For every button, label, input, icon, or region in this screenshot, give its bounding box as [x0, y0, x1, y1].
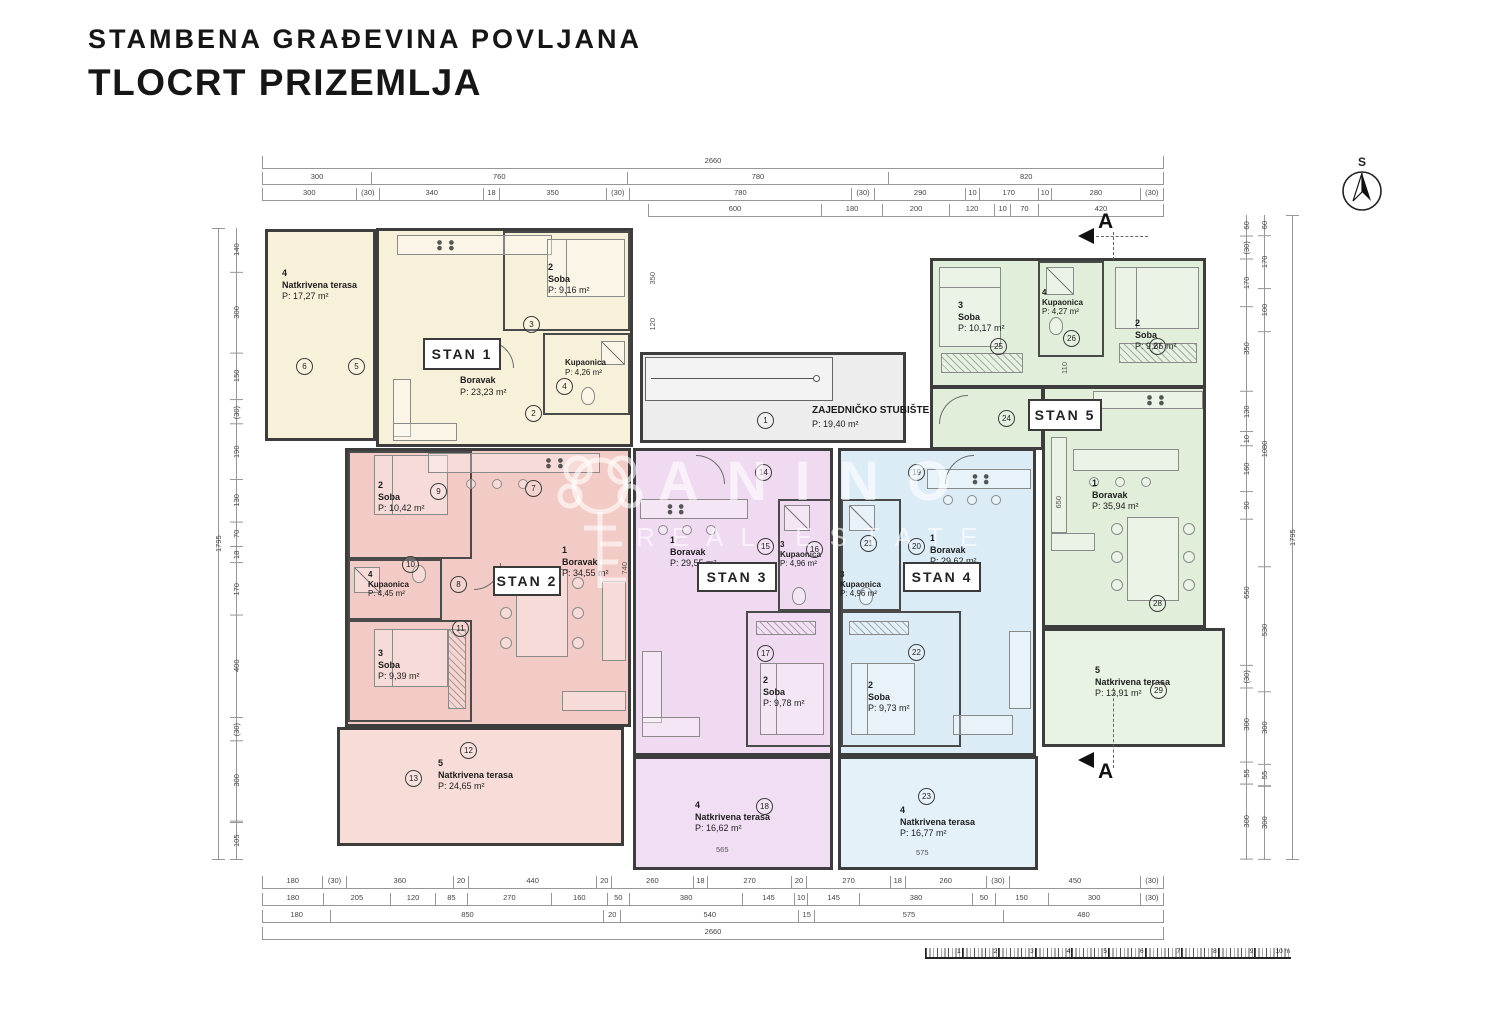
section-arrow-top-icon	[1078, 228, 1094, 244]
dim-label: 760	[372, 172, 628, 185]
dim-col-right-1: 60(30)1703501301016090650(30)30055300	[1240, 215, 1253, 860]
dim-label: 350	[648, 272, 657, 285]
dim-label: 260	[906, 876, 987, 889]
section-line	[1113, 232, 1114, 260]
dim-label: 300	[262, 188, 357, 201]
room-label-stan1-terrace: 4 Natkrivena terasa P: 17,27 m²	[282, 268, 357, 303]
shower-icon	[784, 505, 810, 531]
room-name: Boravak	[1092, 490, 1139, 502]
sofa-icon	[1009, 631, 1031, 709]
stool-icon	[492, 479, 502, 489]
ref-circle: 5	[348, 358, 365, 375]
dim-label: 20	[604, 910, 621, 923]
dim-label: (30)	[230, 401, 243, 424]
dim-label: 780	[628, 172, 890, 185]
dim-label: 575	[815, 910, 1004, 923]
dim-label: (30)	[230, 718, 243, 741]
dim-label: 180	[262, 893, 324, 906]
wardrobe-icon	[941, 353, 1023, 373]
room-num: 4	[368, 570, 409, 580]
room-name: Natkrivena terasa	[438, 770, 513, 782]
dim-label: (30)	[607, 188, 630, 201]
dim-label: 70	[1011, 204, 1039, 217]
dim-label: 10	[995, 204, 1011, 217]
room-name: Soba	[548, 274, 590, 286]
unit-label-stan2: STAN 2	[493, 566, 561, 596]
dim-label: 180	[262, 876, 323, 889]
dim-label: 120	[391, 893, 436, 906]
room-area: P: 9,39 m²	[378, 671, 420, 683]
dim-label: 530	[1258, 568, 1271, 692]
room-label-stan5-kupaonica: 4 Kupaonica P: 4,27 m²	[1042, 288, 1083, 317]
kitchen-island	[1073, 449, 1179, 471]
room-num: 4	[1042, 288, 1083, 298]
dim-label: 18	[891, 876, 906, 889]
room-name: Soba	[868, 692, 910, 704]
dim-row-bottom-1: 180(30)3602044020260182702027018260(30)4…	[262, 876, 1164, 889]
chair-icon	[572, 607, 584, 619]
dim-label: 850	[331, 910, 604, 923]
dim-label: 15	[799, 910, 814, 923]
ref-circle: 15	[757, 538, 774, 555]
dim-label: 10	[966, 188, 980, 201]
dim-col-right-2: 60170100108053030055300	[1258, 215, 1271, 860]
room-name: Soba	[378, 660, 420, 672]
chair-icon	[1111, 579, 1123, 591]
dim-label: 10 m	[1254, 948, 1291, 959]
ref-circle: 26	[1063, 330, 1080, 347]
sofa-icon	[1051, 437, 1067, 533]
ref-circle: 20	[908, 538, 925, 555]
room-num: 4	[900, 805, 975, 817]
dim-row-bottom-total: 2660	[262, 927, 1164, 940]
stove-icon	[662, 502, 694, 516]
room-name: Natkrivena terasa	[900, 817, 975, 829]
dim-label: 350	[500, 188, 607, 201]
dim-label: 300	[1049, 893, 1141, 906]
dim-label: 600	[648, 204, 822, 217]
room-label-stan5-boravak: 1 Boravak P: 35,94 m²	[1092, 478, 1139, 513]
room-label-stan2-soba3: 3 Soba P: 9,39 m²	[378, 648, 420, 683]
dim-label: 400	[230, 615, 243, 718]
door-arc	[939, 395, 968, 424]
dim-label: 340	[380, 188, 484, 201]
ref-circle: 12	[460, 742, 477, 759]
dim-label: 780	[630, 188, 852, 201]
dim-label: 540	[621, 910, 799, 923]
dim-col-left-total: 1795	[212, 228, 225, 860]
dim-label: (30)	[1240, 666, 1253, 688]
room-area: P: 9,78 m²	[763, 698, 805, 710]
dim-label: 8	[1181, 948, 1218, 959]
dim-label: 85	[436, 893, 468, 906]
ref-circle: 6	[296, 358, 313, 375]
room-name: ZAJEDNIČKO STUBIŠTE	[812, 404, 929, 418]
ref-circle: 27	[1149, 338, 1166, 355]
room-label-stan1-boravak: Boravak P: 23,23 m²	[460, 375, 507, 398]
dim-label: 4	[1035, 948, 1072, 959]
unit-label-stan1: STAN 1	[423, 338, 501, 370]
dim-label: 18	[484, 188, 499, 201]
room-name: Soba	[378, 492, 425, 504]
dim-label: 180	[262, 910, 331, 923]
room-name: Boravak	[460, 375, 507, 387]
ref-circle: 4	[556, 378, 573, 395]
unit-label-stan5: STAN 5	[1028, 399, 1102, 431]
dim-label: 150	[230, 353, 243, 400]
room-area: P: 17,27 m²	[282, 291, 357, 303]
ref-circle: 11	[452, 620, 469, 637]
room-label-stan2-kupaonica: 4 Kupaonica P: 4,45 m²	[368, 570, 409, 599]
room-name: Soba	[958, 312, 1005, 324]
dim-label: (30)	[852, 188, 875, 201]
dim-label: 110	[1060, 362, 1069, 374]
sofa-icon	[642, 717, 700, 737]
unit-label-stan3: STAN 3	[697, 562, 777, 592]
dim-label: 360	[347, 876, 454, 889]
chair-icon	[500, 607, 512, 619]
stool-icon	[682, 525, 692, 535]
room-area: P: 10,42 m²	[378, 503, 425, 515]
dim-label: 7	[1145, 948, 1182, 959]
room-stan1-main	[376, 228, 633, 447]
dim-label: 160	[1240, 446, 1253, 492]
dim-label: 170	[1240, 259, 1253, 307]
dim-label: (30)	[1141, 188, 1164, 201]
dim-label: 170	[230, 564, 243, 616]
dim-label: 105	[230, 822, 243, 860]
ref-circle: 16	[806, 541, 823, 558]
dim-label: (30)	[323, 876, 346, 889]
dim-label: 5	[1071, 948, 1108, 959]
room-area: P: 4,45 m²	[368, 589, 409, 599]
stairs-icon	[645, 357, 833, 401]
ref-circle: 18	[756, 798, 773, 815]
dim-label: 55	[1258, 765, 1271, 786]
dim-label: 160	[552, 893, 608, 906]
ref-circle: 24	[998, 410, 1015, 427]
room-label-stan2-terrace: 5 Natkrivena terasa P: 24,65 m²	[438, 758, 513, 793]
dim-col-left: 140300150(30)1901307018170400(30)300105	[230, 228, 243, 860]
room-num: 2	[1135, 318, 1177, 330]
room-area: P: 4,26 m²	[565, 368, 606, 378]
dim-label: 55	[1240, 763, 1253, 785]
ref-circle: 28	[1149, 595, 1166, 612]
dim-label: 650	[1054, 496, 1063, 509]
dim-row-top-2: 300760780820	[262, 172, 1164, 185]
dim-label: (30)	[1141, 876, 1164, 889]
dim-label: 18	[694, 876, 709, 889]
door-arc	[945, 455, 974, 484]
toilet-icon	[792, 587, 806, 605]
ref-circle: 21	[860, 535, 877, 552]
dim-label: 20	[454, 876, 469, 889]
stool-icon	[706, 525, 716, 535]
room-num: 5	[438, 758, 513, 770]
stool-icon	[1141, 477, 1151, 487]
dim-label: 50	[608, 893, 630, 906]
chair-icon	[500, 637, 512, 649]
room-label-staircase: ZAJEDNIČKO STUBIŠTE P: 19,40 m²	[812, 404, 929, 430]
stool-icon	[991, 495, 1001, 505]
dim-label: 300	[1258, 692, 1271, 765]
dim-label: 90	[1240, 492, 1253, 520]
dim-label: 380	[860, 893, 973, 906]
chair-icon	[1111, 523, 1123, 535]
room-label-stan3-soba: 2 Soba P: 9,78 m²	[763, 675, 805, 710]
dim-label: 100	[1258, 289, 1271, 332]
dim-label: 1	[925, 948, 962, 959]
room-num: 2	[548, 262, 590, 274]
dim-label: 120	[648, 318, 657, 331]
dim-label: 1795	[1286, 215, 1299, 860]
stool-icon	[943, 495, 953, 505]
dim-label: 300	[1240, 688, 1253, 763]
dim-label: 450	[1010, 876, 1141, 889]
room-area: P: 16,77 m²	[900, 828, 975, 840]
section-arrow-bottom-icon	[1078, 752, 1094, 768]
dim-label: 480	[1004, 910, 1164, 923]
toilet-icon	[1049, 317, 1063, 335]
room-area: P: 10,17 m²	[958, 323, 1005, 335]
room-num: 2	[378, 480, 425, 492]
page-subtitle: TLOCRT PRIZEMLJA	[88, 62, 482, 104]
room-label-stan4-soba: 2 Soba P: 9,73 m²	[868, 680, 910, 715]
room-name: Natkrivena terasa	[282, 280, 357, 292]
room-area: P: 23,23 m²	[460, 387, 507, 399]
dim-label: 170	[1258, 236, 1271, 289]
ref-circle: 17	[757, 645, 774, 662]
room-label-stan2-boravak: 1 Boravak P: 34,55 m²	[562, 545, 609, 580]
kitchen-counter	[640, 499, 748, 519]
room-area: P: 35,94 m²	[1092, 501, 1139, 513]
room-area: P: 34,55 m²	[562, 568, 609, 580]
section-label-bottom: A	[1098, 760, 1113, 784]
dim-label: 10	[1039, 188, 1053, 201]
room-area: P: 4,27 m²	[1042, 307, 1083, 317]
dining-table	[1127, 517, 1179, 601]
dim-label: 300	[262, 172, 372, 185]
stool-icon	[658, 525, 668, 535]
room-label-stan5-soba3: 3 Soba P: 10,17 m²	[958, 300, 1005, 335]
dim-label: (30)	[1240, 237, 1253, 259]
room-name: Kupaonica	[565, 358, 606, 368]
dim-label: 740	[620, 562, 629, 575]
dim-label: 60	[1258, 215, 1271, 236]
dim-label: 10	[1240, 432, 1253, 446]
dim-label: (30)	[987, 876, 1010, 889]
dim-label: 205	[324, 893, 391, 906]
dim-label: 300	[230, 273, 243, 354]
room-name: Kupaonica	[840, 580, 881, 590]
room-area: P: 4,96 m²	[780, 559, 821, 569]
room-num: 1	[1092, 478, 1139, 490]
ref-circle: 23	[918, 788, 935, 805]
floor-plan-canvas: STAMBENA GRAĐEVINA POVLJANA TLOCRT PRIZE…	[0, 0, 1500, 1018]
ref-circle: 7	[525, 480, 542, 497]
dim-label: 270	[468, 893, 552, 906]
sofa-icon	[562, 691, 626, 711]
dim-label: 300	[230, 741, 243, 822]
room-stan5-hall	[930, 386, 1044, 450]
dim-label: 10	[795, 893, 809, 906]
dim-label: 440	[469, 876, 597, 889]
room-label-stan4-kupaonica: 3 Kupaonica P: 4,96 m²	[840, 570, 881, 599]
dim-label: 18	[230, 547, 243, 563]
dim-label: 1795	[212, 228, 225, 860]
dim-label: 9	[1218, 948, 1255, 959]
ref-circle: 1	[757, 412, 774, 429]
dim-row-top-3: 300(30)34018350(30)780(30)2901017010280(…	[262, 188, 1164, 201]
dim-label: 2	[962, 948, 999, 959]
unit-label-stan4: STAN 4	[903, 562, 981, 592]
room-name: Kupaonica	[1042, 298, 1083, 308]
wardrobe-icon	[448, 629, 466, 709]
room-stan1-terrace	[265, 229, 376, 441]
dim-label: 60	[1240, 215, 1253, 237]
sofa-icon	[953, 715, 1013, 735]
section-line	[1113, 688, 1114, 768]
dim-label: 20	[792, 876, 807, 889]
room-num: 5	[1095, 665, 1170, 677]
room-area: P: 4,96 m²	[840, 589, 881, 599]
page-title: STAMBENA GRAĐEVINA POVLJANA	[88, 24, 642, 55]
dim-label: 200	[883, 204, 950, 217]
dim-row-top-total: 2660	[262, 156, 1164, 169]
dim-row-top-4: 6001802001201070420	[648, 204, 1164, 217]
ref-circle: 13	[405, 770, 422, 787]
room-num: 3	[840, 570, 881, 580]
wardrobe-icon	[849, 621, 909, 635]
stair-walkline-end	[813, 375, 820, 382]
chair-icon	[572, 637, 584, 649]
room-name: Boravak	[670, 547, 717, 559]
room-name: Kupaonica	[368, 580, 409, 590]
room-label-stan2-soba2: 2 Soba P: 10,42 m²	[378, 480, 425, 515]
room-num: 1	[930, 533, 977, 545]
dim-row-bottom-3: 1808502054015575480	[262, 910, 1164, 923]
dim-label: 70	[230, 522, 243, 547]
dim-label: 1080	[1258, 332, 1271, 567]
room-area: P: 19,40 m²	[812, 419, 859, 429]
dim-label: 2660	[262, 156, 1164, 169]
room-num: 2	[868, 680, 910, 692]
stool-icon	[466, 479, 476, 489]
room-label-stan4-terrace: 4 Natkrivena terasa P: 16,77 m²	[900, 805, 975, 840]
dim-label: 130	[1240, 392, 1253, 432]
chair-icon	[1111, 551, 1123, 563]
chair-icon	[1183, 523, 1195, 535]
dim-label: 140	[230, 228, 243, 273]
dim-label: 270	[807, 876, 891, 889]
dim-label: 260	[612, 876, 693, 889]
room-name: Boravak	[562, 557, 609, 569]
dim-label: (30)	[357, 188, 380, 201]
room-area: P: 9,73 m²	[868, 703, 910, 715]
dim-label: 270	[708, 876, 792, 889]
section-label-top: A	[1098, 210, 1113, 234]
stool-icon	[967, 495, 977, 505]
dim-label: 6	[1108, 948, 1145, 959]
dim-label: 2660	[262, 927, 1164, 940]
dim-label: 145	[808, 893, 860, 906]
room-label-stan1-soba: 2 Soba P: 9,16 m²	[548, 262, 590, 297]
dim-label: 280	[1052, 188, 1140, 201]
room-num: 2	[763, 675, 805, 687]
room-name: Boravak	[930, 545, 977, 557]
ref-circle: 10	[402, 556, 419, 573]
ref-circle: 8	[450, 576, 467, 593]
dim-label: 190	[230, 424, 243, 480]
ref-circle: 14	[755, 464, 772, 481]
sofa-icon	[642, 651, 662, 723]
dim-label: 565	[716, 845, 729, 854]
dim-label: 350	[1240, 307, 1253, 392]
dim-label: 20	[597, 876, 612, 889]
room-area: P: 16,62 m²	[695, 823, 770, 835]
ref-circle: 29	[1150, 682, 1167, 699]
dim-label: 575	[916, 848, 929, 857]
dim-label: 300	[1240, 784, 1253, 860]
dim-label: 380	[630, 893, 743, 906]
room-name: Soba	[763, 687, 805, 699]
sofa-icon	[393, 423, 457, 441]
stair-walkline	[651, 378, 819, 379]
dim-label: (30)	[1141, 893, 1164, 906]
dim-label: 170	[980, 188, 1039, 201]
stove-icon	[431, 238, 465, 252]
sofa-icon	[1051, 533, 1095, 551]
room-num: 3	[958, 300, 1005, 312]
chair-icon	[1183, 579, 1195, 591]
section-line	[1096, 236, 1148, 237]
dim-label: 130	[230, 480, 243, 523]
dim-label: 650	[1240, 520, 1253, 666]
ref-circle: 22	[908, 644, 925, 661]
dim-label: 120	[950, 204, 995, 217]
dim-label: 820	[889, 172, 1164, 185]
room-label-stan1-kupaonica: Kupaonica P: 4,26 m²	[565, 358, 606, 377]
compass-label: S	[1340, 155, 1384, 169]
room-area: P: 24,65 m²	[438, 781, 513, 793]
ref-circle: 2	[525, 405, 542, 422]
north-compass: S	[1340, 155, 1384, 216]
ref-circle: 19	[908, 464, 925, 481]
chair-icon	[1183, 551, 1195, 563]
dim-label: 3	[998, 948, 1035, 959]
dim-label: 50	[973, 893, 995, 906]
door-arc	[696, 455, 725, 484]
toilet-icon	[581, 387, 595, 405]
scale-bar: 12345678910 m	[925, 948, 1291, 959]
dim-label: 145	[743, 893, 795, 906]
ref-circle: 3	[523, 316, 540, 333]
room-num: 1	[562, 545, 609, 557]
sofa-icon	[602, 581, 626, 661]
kitchen-counter	[397, 235, 552, 255]
room-num: 1	[670, 535, 717, 547]
stove-icon	[1141, 393, 1175, 407]
ref-circle: 25	[990, 338, 1007, 355]
stove-icon	[540, 456, 574, 470]
dim-label: 180	[822, 204, 883, 217]
wardrobe-icon	[756, 621, 816, 635]
dim-label: 300	[1258, 786, 1271, 860]
dim-row-bottom-2: 1802051208527016050380145101453805015030…	[262, 893, 1164, 906]
compass-icon	[1340, 169, 1384, 213]
dim-label: 290	[875, 188, 966, 201]
dim-col-right-total: 1795	[1286, 215, 1299, 860]
